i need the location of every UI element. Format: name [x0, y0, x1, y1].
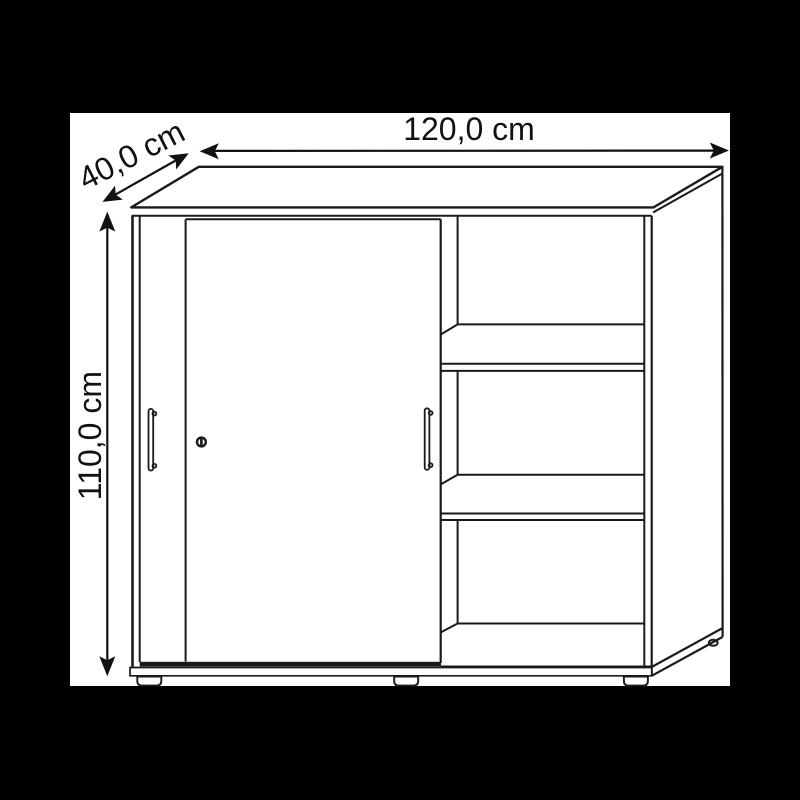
- svg-text:110,0 cm: 110,0 cm: [72, 371, 108, 500]
- svg-text:120,0 cm: 120,0 cm: [403, 111, 535, 147]
